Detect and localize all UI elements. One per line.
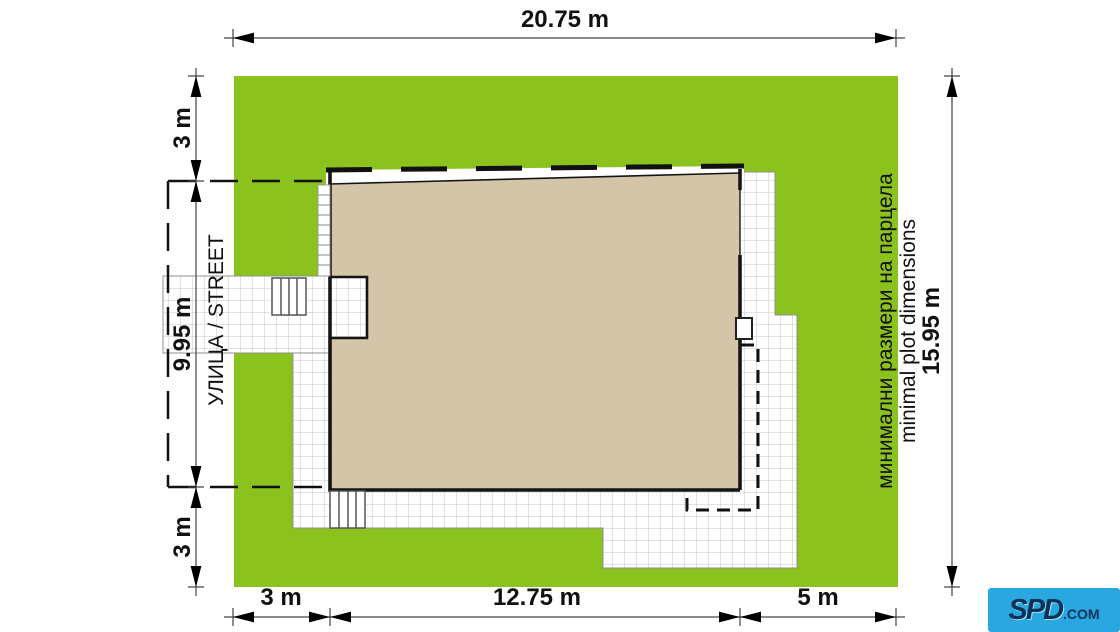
dim-label-right-height: 15.95 m: [918, 287, 946, 375]
dim-label-house-depth: 9.95 m: [169, 297, 197, 372]
dim-arrow: [719, 612, 740, 623]
dim-arrow: [191, 566, 202, 587]
dim-arrow: [875, 33, 896, 44]
dim-arrow: [191, 160, 202, 181]
site-plan-canvas: 20.75 m 3 m 9.95 m 3 m УЛИЦА / STREET ми…: [0, 0, 1120, 632]
paved-right-strip-upper: [740, 172, 775, 315]
dim-label-bottom-right-offset: 5 m: [718, 584, 918, 612]
dim-arrow: [191, 76, 202, 97]
dim-label-left-bottom-setback: 3 m: [169, 516, 197, 557]
dim-arrow: [875, 612, 896, 623]
dim-arrow: [191, 487, 202, 508]
paved-left-column: [293, 353, 330, 490]
dim-arrow: [330, 612, 351, 623]
dim-arrow: [309, 612, 330, 623]
dim-label-top-width: 20.75 m: [465, 6, 665, 34]
dim-arrow: [740, 612, 761, 623]
logo-suffix: .COM: [1063, 606, 1100, 622]
house-footprint: [330, 173, 740, 490]
wall-ladder-strip: [318, 185, 330, 276]
dim-arrow: [233, 612, 254, 623]
plot-note-bulgarian: минимални размери на парцела: [874, 173, 898, 489]
dim-arrow: [191, 181, 202, 202]
site-plan-drawing: [0, 0, 1120, 632]
side-door: [736, 318, 752, 339]
paved-right-strip-lower: [740, 315, 797, 490]
logo-text: SPD: [1008, 596, 1062, 625]
dim-label-house-width: 12.75 m: [437, 584, 637, 612]
street-label: УЛИЦА / STREET: [205, 234, 229, 405]
dim-label-bottom-left-offset: 3 m: [231, 584, 331, 612]
paved-terrace: [603, 490, 797, 568]
dim-arrow: [191, 466, 202, 487]
entrance-steps: [272, 278, 306, 315]
dim-arrow: [947, 566, 958, 587]
dim-arrow: [233, 33, 254, 44]
dim-label-left-top-setback: 3 m: [169, 107, 197, 148]
spd-logo: SPD .COM: [988, 588, 1120, 632]
house-exit-steps: [330, 491, 365, 528]
entrance-porch: [330, 277, 367, 338]
dim-right: [944, 68, 960, 596]
dim-arrow: [947, 76, 958, 97]
